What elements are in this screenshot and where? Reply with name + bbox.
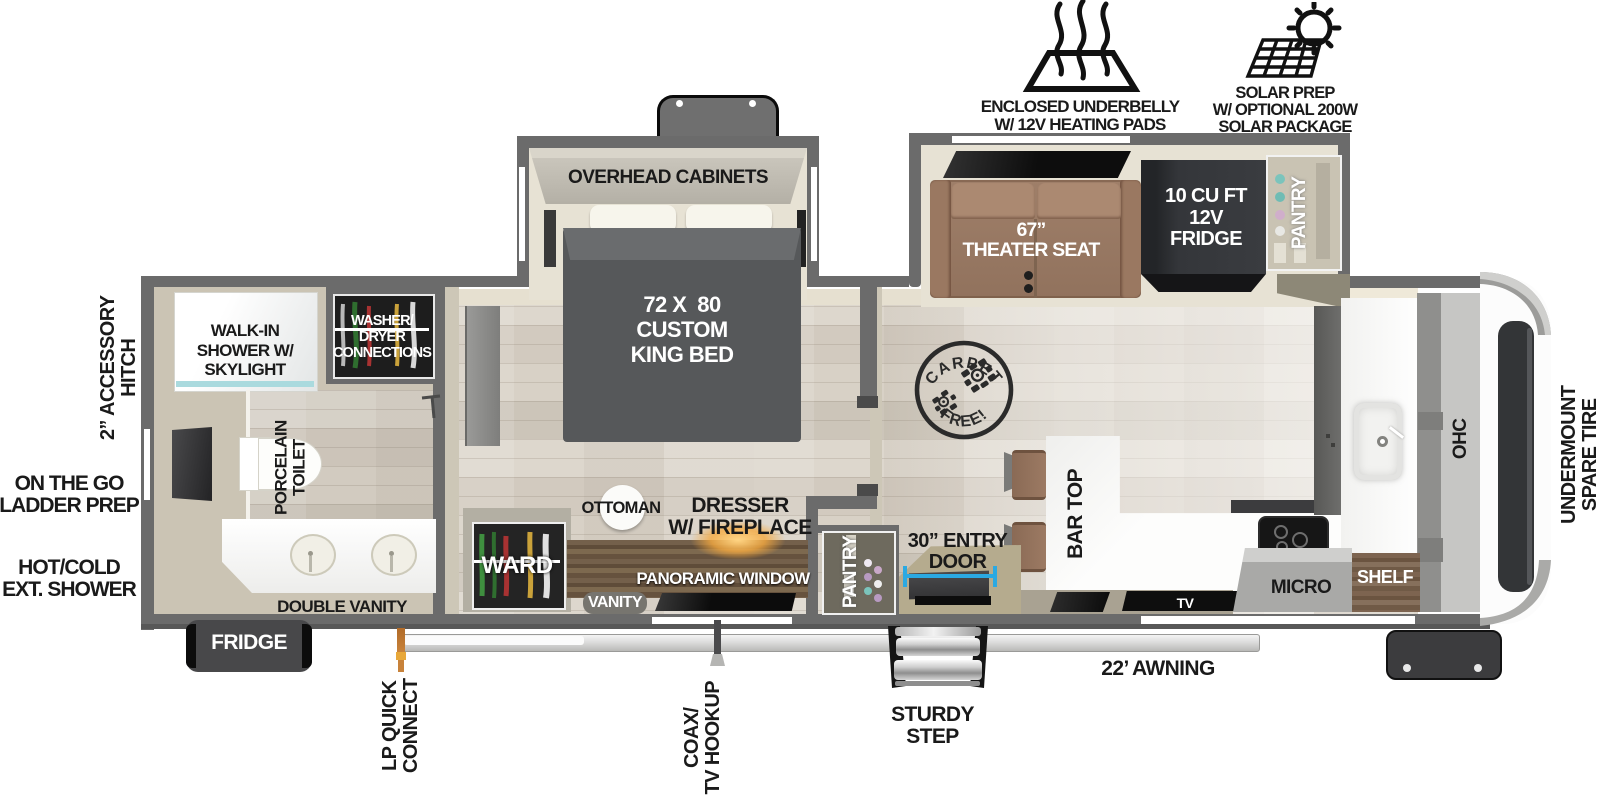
svg-text:FREE!: FREE! — [937, 406, 991, 431]
svg-text:CARPET: CARPET — [922, 354, 1006, 388]
